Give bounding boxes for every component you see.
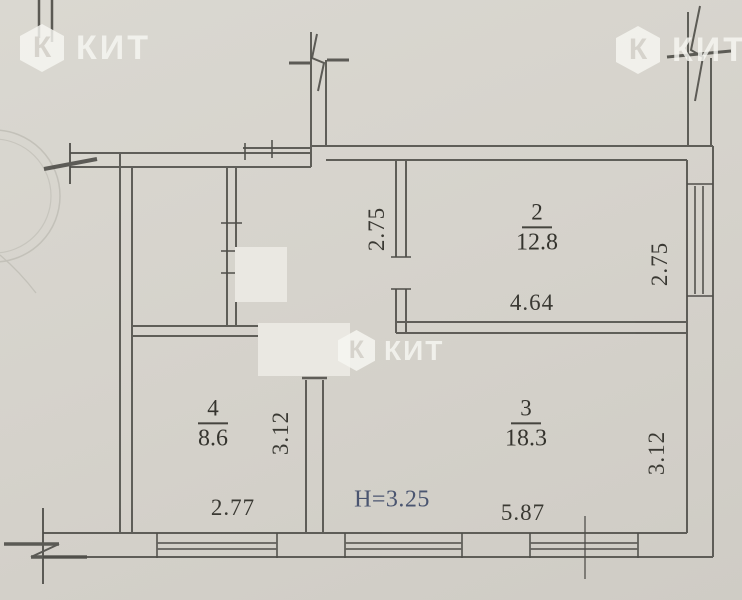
kit-logo-letter: К — [629, 33, 647, 67]
dim-room2-width: 4.64 — [510, 290, 554, 316]
floor-plan-scan: К КИТ К КИТ К КИТ 2 12.8 3 18.3 4 8.6 4.… — [0, 0, 742, 600]
kit-logo-letter: К — [349, 336, 364, 365]
kit-logo-icon: К — [338, 330, 375, 371]
watermark-center: К КИТ — [338, 330, 444, 371]
room-4-label: 4 8.6 — [198, 396, 228, 451]
watermark-text: КИТ — [672, 31, 742, 70]
kit-logo-icon: К — [616, 26, 660, 74]
erased-patch — [258, 323, 350, 376]
kit-logo-letter: К — [33, 31, 51, 65]
room-2-area: 12.8 — [516, 228, 558, 255]
watermark-text: КИТ — [384, 335, 444, 367]
watermark-top-right: К КИТ — [616, 26, 742, 74]
erased-patch — [235, 247, 287, 302]
room-4-area: 8.6 — [198, 424, 228, 451]
room-2-label: 2 12.8 — [516, 200, 558, 255]
room-3-area: 18.3 — [505, 424, 547, 451]
watermark-text: КИТ — [76, 29, 151, 68]
dim-room3-depth: 3.12 — [644, 431, 670, 475]
room-4-number: 4 — [198, 396, 228, 424]
dim-room3-width: 5.87 — [501, 500, 545, 526]
room-3-label: 3 18.3 — [505, 396, 547, 451]
watermark-top-left: К КИТ — [20, 24, 151, 72]
dim-room4-depth: 3.12 — [268, 411, 294, 455]
walls — [43, 12, 713, 557]
ceiling-height-label: H=3.25 — [354, 487, 430, 514]
room-3-number: 3 — [511, 396, 541, 424]
dim-room2-depth: 2.75 — [647, 242, 673, 286]
dim-room4-width: 2.77 — [211, 495, 255, 521]
room-2-number: 2 — [522, 200, 552, 228]
dim-hall-depth: 2.75 — [364, 207, 390, 251]
kit-logo-icon: К — [20, 24, 64, 72]
